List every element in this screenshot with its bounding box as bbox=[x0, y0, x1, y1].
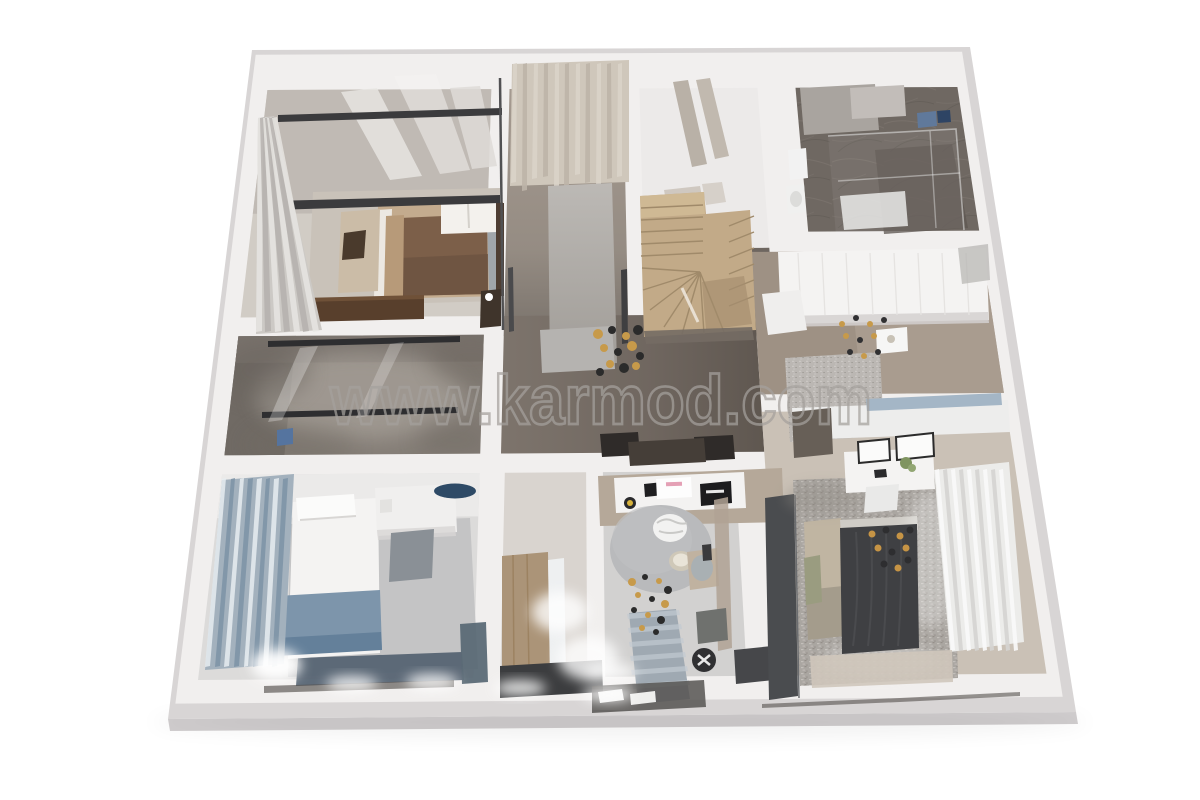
svg-text:www.karmod.com: www.karmod.com bbox=[329, 361, 872, 439]
